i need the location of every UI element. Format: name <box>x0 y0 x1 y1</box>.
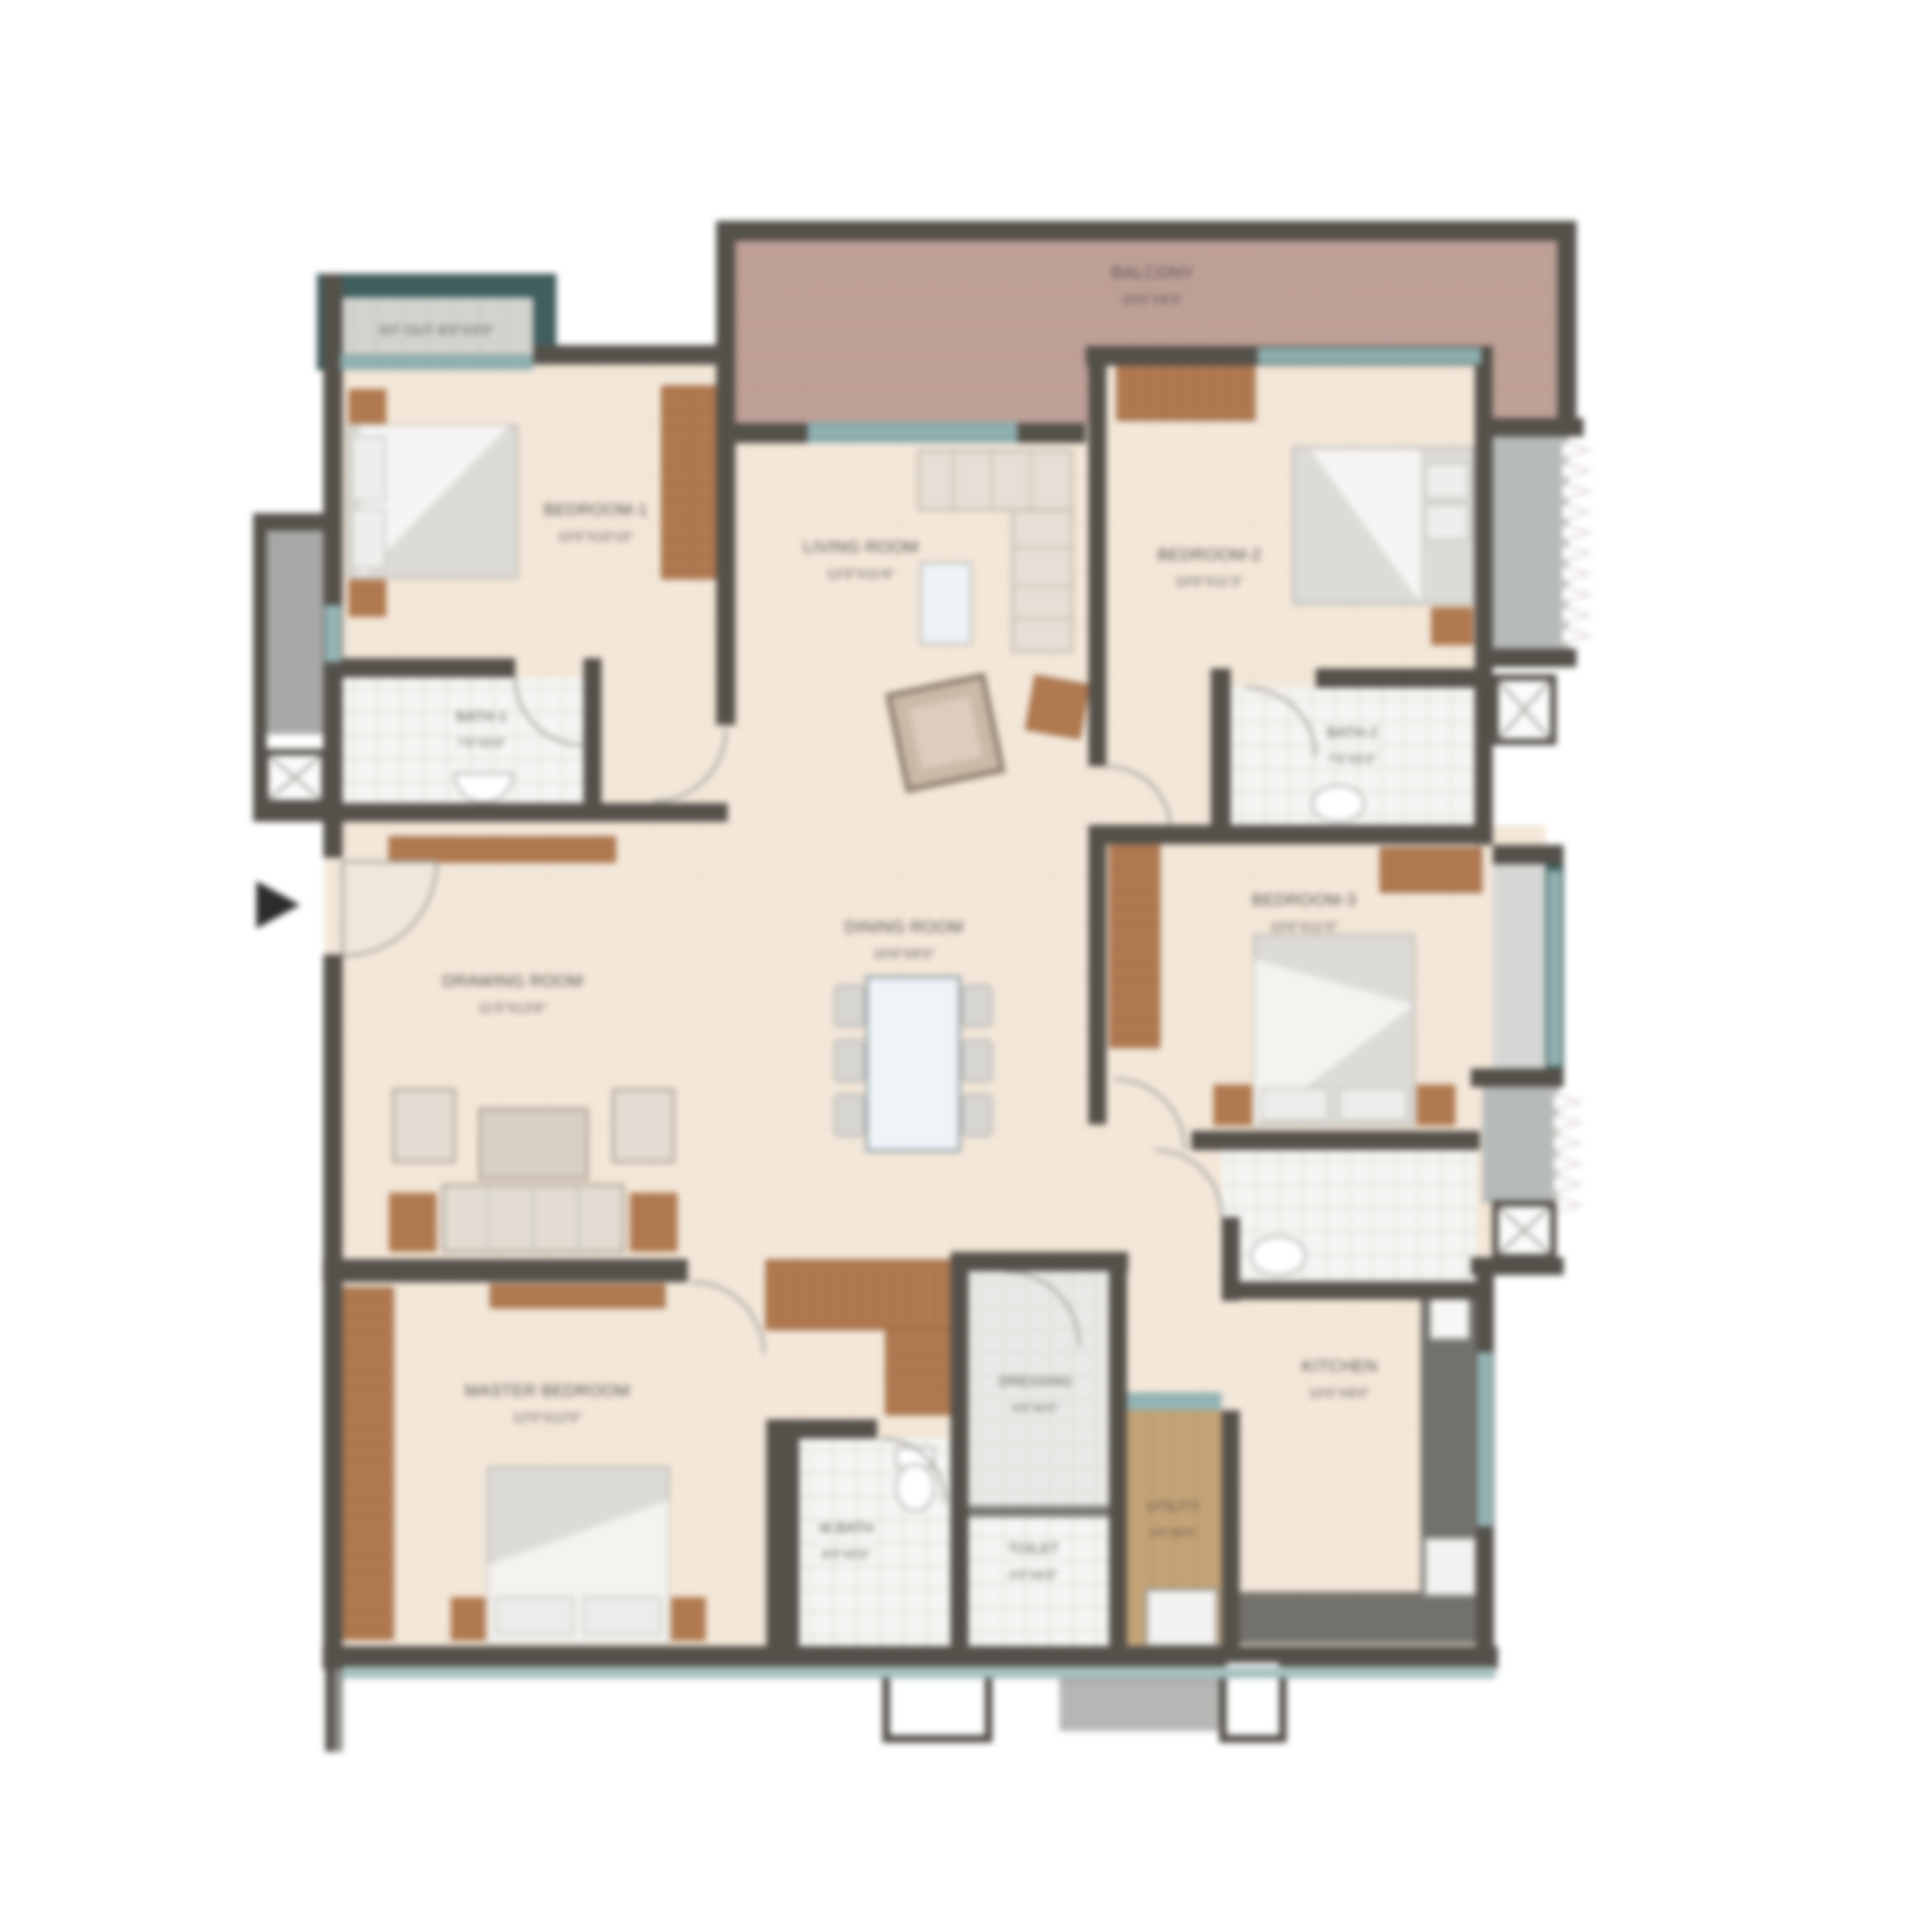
svg-text:10'0"X11'3": 10'0"X11'3" <box>1175 575 1244 589</box>
svg-text:12'0"X12'0": 12'0"X12'0" <box>513 1411 582 1425</box>
svg-text:BEDROOM-2: BEDROOM-2 <box>1157 545 1262 564</box>
svg-text:10'0"X8'0": 10'0"X8'0" <box>1309 1387 1370 1401</box>
svg-text:MASTER BEDROOM: MASTER BEDROOM <box>465 1381 630 1400</box>
svg-text:BALCONY: BALCONY <box>1112 263 1194 282</box>
svg-text:11'0"X13'6": 11'0"X13'6" <box>478 1001 547 1016</box>
svg-text:M.BATH: M.BATH <box>820 1520 874 1536</box>
svg-text:3'6"X8'0": 3'6"X8'0" <box>1150 1527 1197 1539</box>
svg-text:4'0"X6'0": 4'0"X6'0" <box>1009 1569 1058 1582</box>
svg-text:BATH-2: BATH-2 <box>1327 724 1378 741</box>
svg-text:10'6"X11'0": 10'6"X11'0" <box>1270 920 1338 934</box>
svg-text:10'0"X10'10": 10'0"X10'10" <box>557 530 634 544</box>
svg-text:12'0"X11'6": 12'0"X11'6" <box>827 567 895 582</box>
svg-text:DRESSING: DRESSING <box>999 1374 1072 1389</box>
svg-text:8'0"X5'0": 8'0"X5'0" <box>822 1548 871 1561</box>
svg-text:KITCHEN: KITCHEN <box>1302 1356 1378 1376</box>
svg-text:20'0"X6'0": 20'0"X6'0" <box>1122 293 1184 307</box>
svg-text:TOILET: TOILET <box>1008 1540 1059 1557</box>
svg-text:7'6"X5'0": 7'6"X5'0" <box>1328 753 1377 766</box>
svg-text:6'6"X6'0": 6'6"X6'0" <box>1012 1402 1059 1414</box>
svg-text:10'6"X8'0": 10'6"X8'0" <box>873 947 935 961</box>
svg-text:SIT OUT 8'0"X3'0": SIT OUT 8'0"X3'0" <box>379 323 495 338</box>
svg-text:DRAWING ROOM: DRAWING ROOM <box>442 971 583 990</box>
svg-text:BEDROOM-3: BEDROOM-3 <box>1252 890 1356 909</box>
svg-text:UTILITY: UTILITY <box>1147 1499 1200 1514</box>
svg-text:BEDROOM-1: BEDROOM-1 <box>544 500 648 519</box>
svg-text:DINING ROOM: DINING ROOM <box>845 917 964 936</box>
svg-text:BATH-1: BATH-1 <box>456 708 507 724</box>
svg-text:LIVING ROOM: LIVING ROOM <box>804 537 919 556</box>
svg-text:7'6"X5'0": 7'6"X5'0" <box>457 737 506 750</box>
